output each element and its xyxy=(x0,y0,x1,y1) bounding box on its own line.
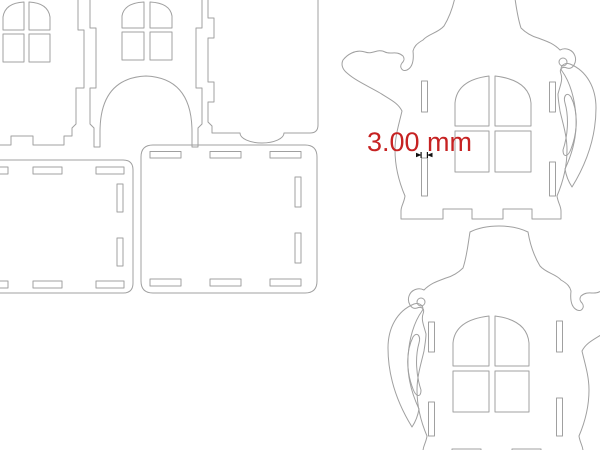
template-drawing: 3.00 mm xyxy=(0,0,600,450)
window-cutout xyxy=(29,34,50,62)
slot-cutout xyxy=(96,167,124,174)
flat-panel xyxy=(208,0,318,143)
slot-cutout xyxy=(270,152,301,159)
slot-cutout xyxy=(0,167,8,174)
window-cutout xyxy=(455,76,489,126)
panel-outline xyxy=(90,0,202,147)
window-cutout xyxy=(122,2,144,28)
teapot-side-panel-top xyxy=(342,0,596,219)
slot-cutout xyxy=(0,281,8,288)
slot-cutout xyxy=(117,238,123,266)
base-panel-right xyxy=(141,145,317,293)
window-cutout xyxy=(122,32,144,60)
slot-cutout xyxy=(117,184,123,212)
handle-outline xyxy=(561,64,596,187)
window-cutout xyxy=(3,34,24,62)
panel-outline xyxy=(208,0,318,143)
house-front-panel xyxy=(90,0,202,147)
slot-cutout xyxy=(96,281,124,288)
panel-outline xyxy=(0,0,84,145)
window-cutout xyxy=(495,76,531,126)
panel-outline xyxy=(0,160,133,293)
slot-cutout xyxy=(270,279,301,286)
house-side-panel xyxy=(0,0,84,145)
slot-cutout xyxy=(295,177,301,207)
laser-cut-template-preview: 3.00 mm xyxy=(0,0,600,450)
slot-cutout xyxy=(210,279,241,286)
slot-cutout xyxy=(550,162,556,196)
slot-cutout xyxy=(150,152,181,159)
slot-cutout xyxy=(33,281,62,288)
slot-cutout xyxy=(295,233,301,263)
teapot-side-panel-bottom xyxy=(388,226,600,450)
window-cutout xyxy=(150,2,172,28)
window-cutout xyxy=(495,131,531,172)
slot-cutout xyxy=(422,81,428,112)
slot-cutout xyxy=(210,152,241,159)
dimension-annotation: 3.00 mm xyxy=(367,127,472,158)
window-cutout xyxy=(29,2,50,30)
window-cutout xyxy=(150,32,172,60)
slot-cutout xyxy=(422,158,428,196)
slot-cutout xyxy=(550,82,556,112)
dimension-label: 3.00 mm xyxy=(367,127,472,157)
window-cutout xyxy=(3,2,24,30)
slot-cutout xyxy=(150,279,181,286)
base-panel-left xyxy=(0,160,133,293)
panel-outline xyxy=(141,145,317,293)
slot-cutout xyxy=(33,167,62,174)
teapot-outline xyxy=(342,0,575,219)
